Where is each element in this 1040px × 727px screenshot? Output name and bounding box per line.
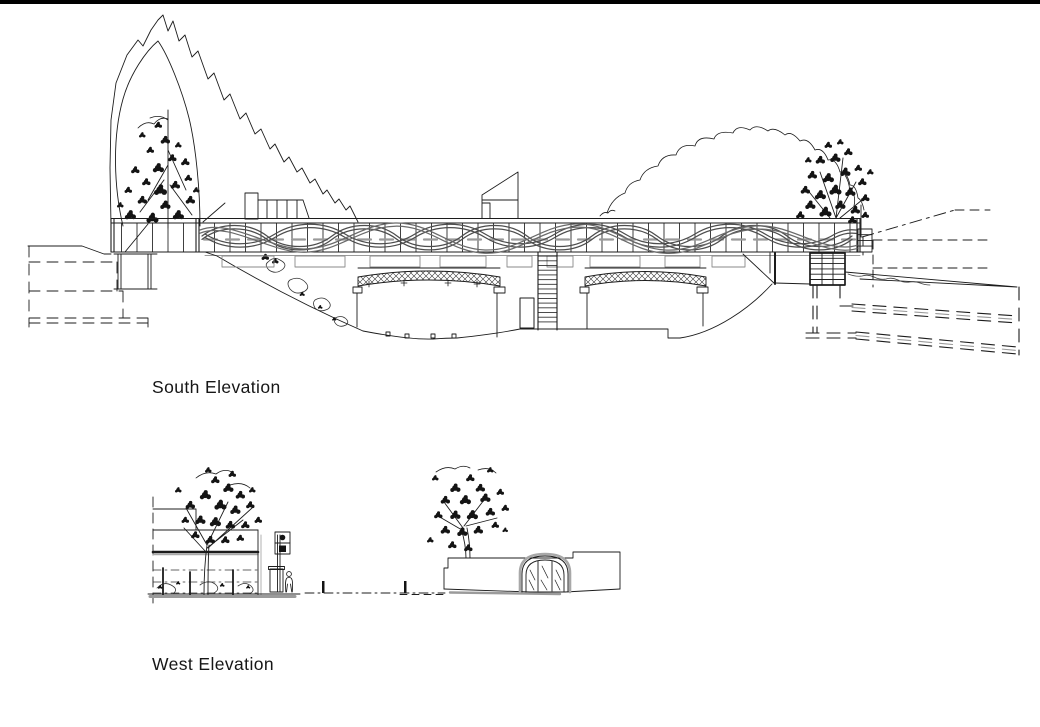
embankment-slope: [205, 252, 363, 331]
south-elevation-drawing: [28, 15, 1019, 355]
west-elevation-drawing: [148, 466, 620, 603]
elevation-drawings-svg: [0, 0, 1040, 727]
sign-post: [275, 532, 290, 592]
mountain-outline: [110, 15, 358, 226]
left-ground-and-abutment: [28, 246, 157, 327]
bollard: [322, 581, 325, 593]
west-tree-2: [427, 466, 509, 558]
abutment-stair-grid: [810, 253, 845, 285]
west-tree-1: [175, 467, 262, 595]
arch-span-1: [353, 268, 505, 337]
lower-right-buried-lines: [806, 285, 1019, 355]
tunnel-portal: [520, 554, 570, 592]
bollard: [404, 581, 407, 593]
soffit-panels: [222, 256, 745, 267]
access-door: [520, 298, 534, 328]
deck-planter-structure: [245, 193, 309, 219]
south-elevation-label: South Elevation: [152, 377, 281, 398]
south-left-tree: [115, 41, 225, 228]
riverbed-outline: [363, 284, 772, 339]
south-right-tree-foliage: [796, 139, 873, 223]
south-left-tree-foliage: [117, 122, 200, 223]
south-cloud-tree: [600, 127, 864, 216]
west-terrace-steps: [153, 497, 261, 603]
arch-span-2: [580, 268, 708, 329]
right-ground: [845, 272, 1017, 287]
west-wall-tunnel: [444, 552, 620, 594]
west-tree-2-foliage: [427, 467, 509, 551]
utility-cabinet: [269, 567, 285, 593]
west-street-furniture: [269, 532, 407, 593]
west-elevation-label: West Elevation: [152, 654, 274, 675]
deck-sail-structure: [482, 172, 518, 218]
bridge-deck: [111, 219, 860, 256]
south-right-tree: [796, 139, 873, 237]
west-ground-line: [148, 593, 446, 597]
drawing-sheet: South Elevation West Elevation: [0, 0, 1040, 727]
west-fence-shrubs: [153, 568, 258, 595]
person-figure: [285, 572, 292, 592]
central-pier-ladder: [520, 252, 557, 330]
